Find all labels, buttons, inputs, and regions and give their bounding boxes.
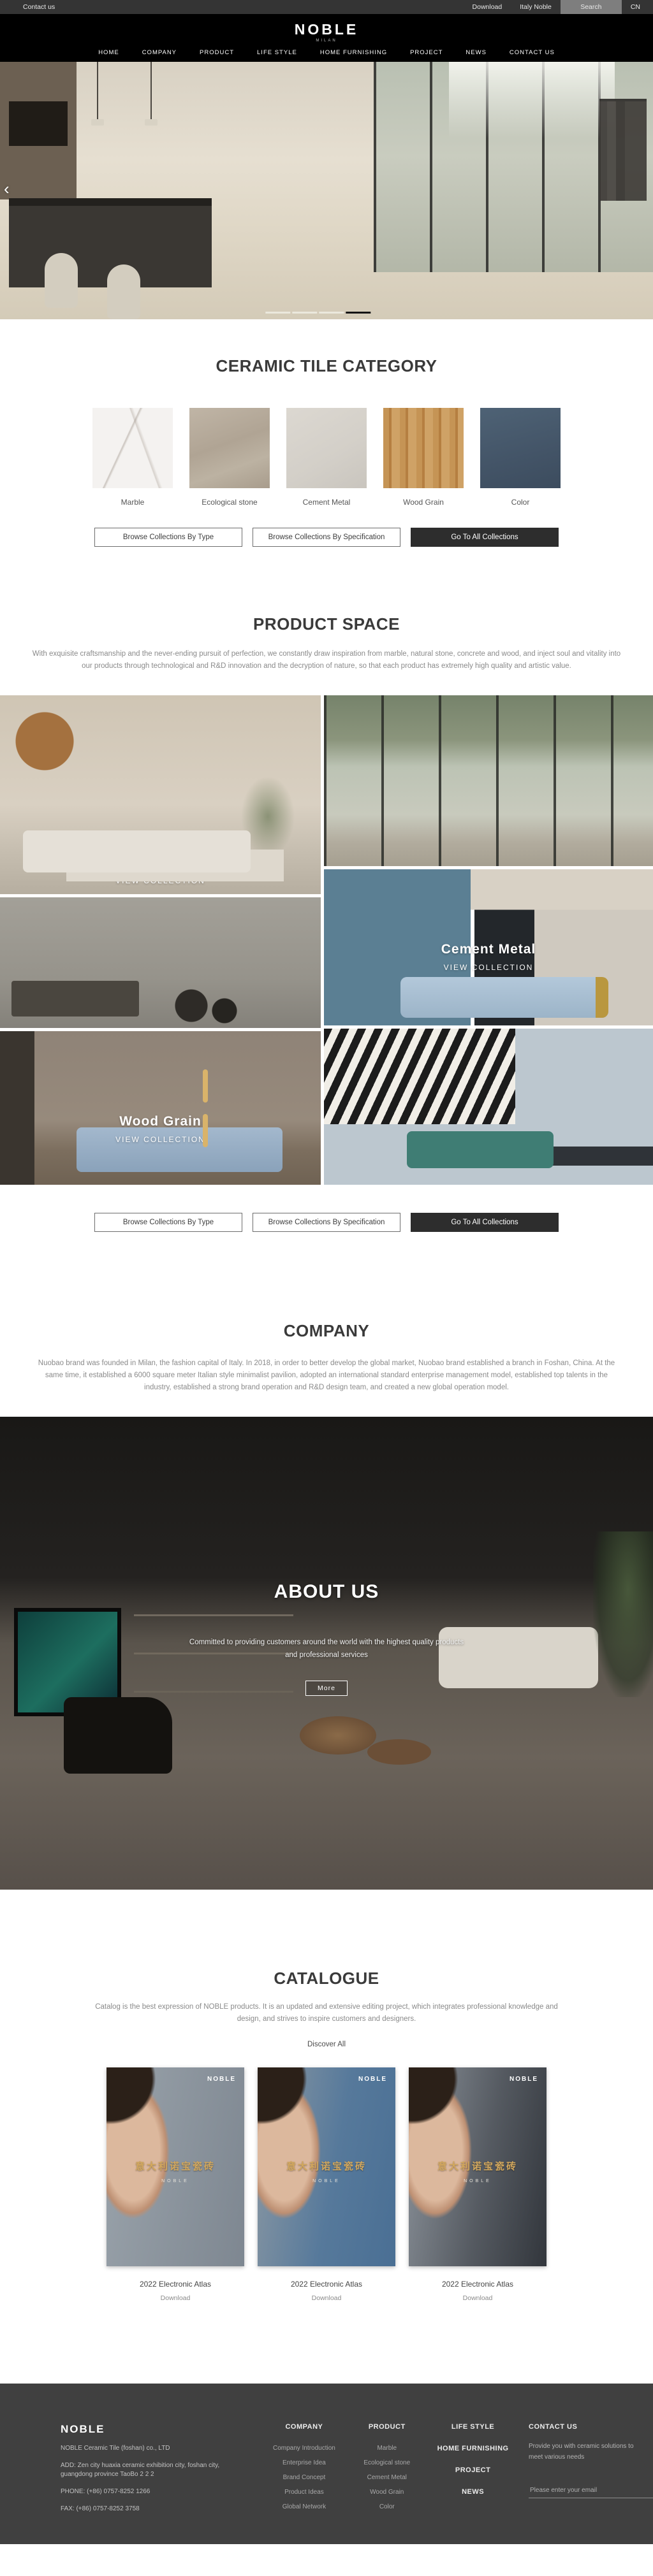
carousel-prev-icon[interactable]: ‹ xyxy=(4,180,10,197)
poster-subtitle: NOBLE xyxy=(409,2179,547,2183)
hero-window-glow xyxy=(449,62,615,138)
topbar-right: Download Italy Noble Search CN xyxy=(464,0,653,14)
catalogue-card-1: NOBLE 意大利诺宝瓷砖 NOBLE 2022 Electronic Atla… xyxy=(106,2067,244,2302)
footer-column-nav: LIFE STYLE HOME FURNISHING PROJECT NEWS xyxy=(436,2423,510,2544)
poster-brand: NOBLE xyxy=(207,2076,236,2083)
category-tile-color[interactable]: Color xyxy=(480,408,561,507)
footer-contact-text: Provide you with ceramic solutions to me… xyxy=(529,2441,637,2463)
cement-metal-swatch-image xyxy=(286,408,367,488)
go-to-all-collections-button[interactable]: Go To All Collections xyxy=(411,1213,559,1232)
catalogue-cover-3[interactable]: NOBLE 意大利诺宝瓷砖 NOBLE xyxy=(409,2067,547,2266)
space-tile-cement-metal[interactable]: Cement Metal VIEW COLLECTION xyxy=(324,869,653,1025)
about-more-button[interactable]: More xyxy=(305,1681,348,1696)
footer-link-life-style[interactable]: LIFE STYLE xyxy=(436,2423,510,2431)
footer-contact-title[interactable]: CONTACT US xyxy=(529,2423,653,2431)
about-title: ABOUT US xyxy=(0,1581,653,1603)
main-nav: HOME COMPANY PRODUCT LIFE STYLE HOME FUR… xyxy=(0,43,653,62)
carousel-indicator-3[interactable] xyxy=(319,312,344,314)
catalogue-card-3: NOBLE 意大利诺宝瓷砖 NOBLE 2022 Electronic Atla… xyxy=(409,2067,547,2302)
footer-link-product-ideas[interactable]: Product Ideas xyxy=(271,2485,338,2500)
space-tile-caption: Wood Grain VIEW COLLECTION xyxy=(0,1114,321,1144)
nav-item-news[interactable]: NEWS xyxy=(466,49,487,56)
space-tile-glass-pavilion[interactable] xyxy=(324,695,653,866)
carousel-indicators xyxy=(265,312,371,314)
color-swatch-image xyxy=(480,408,561,488)
catalogue-paragraph: Catalog is the best expression of NOBLE … xyxy=(84,2001,569,2025)
footer-link-home-furnishing[interactable]: HOME FURNISHING xyxy=(436,2445,510,2452)
download-link[interactable]: Download xyxy=(464,0,511,14)
category-tile-label: Color xyxy=(480,498,561,507)
footer-link-wood-grain[interactable]: Wood Grain xyxy=(356,2485,417,2500)
company-paragraph: Nuobao brand was founded in Milan, the f… xyxy=(38,1357,615,1394)
footer-link-ecological-stone[interactable]: Ecological stone xyxy=(356,2456,417,2470)
footer-link-color[interactable]: Color xyxy=(356,2500,417,2514)
hero-bar-stool xyxy=(107,264,140,319)
footer-phone: PHONE: (+86) 0757-8252 1266 xyxy=(61,2487,252,2496)
ceramic-tile-category-section: CERAMIC TILE CATEGORY Marble Ecological … xyxy=(0,319,653,547)
newsletter-email-input[interactable] xyxy=(529,2484,653,2498)
footer-link-cement-metal[interactable]: Cement Metal xyxy=(356,2470,417,2485)
footer-link-project[interactable]: PROJECT xyxy=(436,2466,510,2474)
catalogue-section: CATALOGUE Catalog is the best expression… xyxy=(0,1969,653,2302)
footer-link-marble[interactable]: Marble xyxy=(356,2441,417,2456)
footer-column-product: PRODUCT Marble Ecological stone Cement M… xyxy=(356,2423,417,2544)
poster-title-cn: 意大利诺宝瓷砖 xyxy=(409,2159,547,2173)
footer-brand-logo: NOBLE xyxy=(61,2423,252,2436)
catalogue-download-link[interactable]: Download xyxy=(258,2294,395,2302)
nav-item-product[interactable]: PRODUCT xyxy=(200,49,234,56)
footer-link-global-network[interactable]: Global Network xyxy=(271,2500,338,2514)
site-header: NOBLE MILAN xyxy=(0,14,653,43)
space-tile-title: Wood Grain xyxy=(0,1114,321,1129)
space-tile-caption: Cement Metal VIEW COLLECTION xyxy=(324,942,653,972)
space-tile-wood-grain[interactable]: Wood Grain VIEW COLLECTION xyxy=(0,1031,321,1185)
category-tile-cement-metal[interactable]: Cement Metal xyxy=(286,408,367,507)
browse-by-specification-button[interactable]: Browse Collections By Specification xyxy=(253,1213,400,1232)
top-utility-bar: Contact us Download Italy Noble Search C… xyxy=(0,0,653,14)
footer-company-name: NOBLE Ceramic Tile (foshan) co., LTD xyxy=(61,2444,252,2453)
footer-product-links: Marble Ecological stone Cement Metal Woo… xyxy=(356,2441,417,2514)
carousel-indicator-4-active[interactable] xyxy=(346,312,371,314)
category-tile-label: Cement Metal xyxy=(286,498,367,507)
company-title: COMPANY xyxy=(0,1321,653,1341)
language-toggle-cn[interactable]: CN xyxy=(622,0,653,14)
marble-swatch-image xyxy=(92,408,173,488)
nav-item-home[interactable]: HOME xyxy=(98,49,119,56)
footer-link-news[interactable]: NEWS xyxy=(436,2488,510,2496)
browse-by-type-button[interactable]: Browse Collections By Type xyxy=(94,528,242,547)
nav-item-life-style[interactable]: LIFE STYLE xyxy=(257,49,297,56)
footer-company-info: NOBLE NOBLE Ceramic Tile (foshan) co., L… xyxy=(61,2423,252,2544)
poster-title-cn: 意大利诺宝瓷砖 xyxy=(258,2159,395,2173)
about-us-banner: ABOUT US Committed to providing customer… xyxy=(0,1417,653,1890)
carousel-indicator-2[interactable] xyxy=(292,312,317,314)
category-section-title: CERAMIC TILE CATEGORY xyxy=(0,356,653,376)
category-tile-label: Marble xyxy=(92,498,173,507)
space-tile-caption: Marbl VIEW COLLECTION xyxy=(0,855,321,885)
category-tile-marble[interactable]: Marble xyxy=(92,408,173,507)
footer-contact-block: CONTACT US Provide you with ceramic solu… xyxy=(529,2423,653,2544)
view-collection-link[interactable]: VIEW COLLECTION xyxy=(324,963,653,972)
footer-column-title[interactable]: COMPANY xyxy=(271,2423,338,2431)
catalogue-cover-1[interactable]: NOBLE 意大利诺宝瓷砖 NOBLE xyxy=(106,2067,244,2266)
catalogue-download-link[interactable]: Download xyxy=(409,2294,547,2302)
view-collection-link[interactable]: VIEW COLLECTION xyxy=(0,876,321,885)
space-tile-marble[interactable]: Marbl VIEW COLLECTION xyxy=(0,695,321,894)
about-overlay: ABOUT US Committed to providing customer… xyxy=(0,1581,653,1696)
site-footer: NOBLE NOBLE Ceramic Tile (foshan) co., L… xyxy=(0,2384,653,2544)
product-space-paragraph: With exquisite craftsmanship and the nev… xyxy=(29,648,625,672)
catalogue-download-link[interactable]: Download xyxy=(106,2294,244,2302)
category-tile-ecological-stone[interactable]: Ecological stone xyxy=(189,408,270,507)
space-tile-striped-room[interactable] xyxy=(324,1029,653,1185)
showroom-armchair xyxy=(64,1697,172,1774)
grid-right-column: Cement Metal VIEW COLLECTION xyxy=(324,695,653,1185)
ecological-stone-swatch-image xyxy=(189,408,270,488)
catalogue-label: 2022 Electronic Atlas xyxy=(258,2280,395,2289)
go-to-all-collections-button[interactable]: Go To All Collections xyxy=(411,528,559,547)
company-section: COMPANY Nuobao brand was founded in Mila… xyxy=(0,1321,653,1394)
hero-fireplace xyxy=(9,101,68,146)
search-button[interactable]: Search xyxy=(561,0,622,14)
nav-item-home-furnishing[interactable]: HOME FURNISHING xyxy=(320,49,387,56)
poster-title-cn: 意大利诺宝瓷砖 xyxy=(106,2159,244,2173)
hero-pendant-light xyxy=(97,62,98,120)
footer-company-links: Company Introduction Enterprise Idea Bra… xyxy=(271,2441,338,2514)
showroom-coffee-tables xyxy=(300,1716,376,1755)
nav-item-company[interactable]: COMPANY xyxy=(142,49,177,56)
footer-column-title[interactable]: PRODUCT xyxy=(356,2423,417,2431)
space-tile-title: Cement Metal xyxy=(324,942,653,957)
nav-item-project[interactable]: PROJECT xyxy=(410,49,443,56)
catalogue-label: 2022 Electronic Atlas xyxy=(106,2280,244,2289)
about-line2: and professional services xyxy=(285,1651,368,1659)
catalogue-card-2: NOBLE 意大利诺宝瓷砖 NOBLE 2022 Electronic Atla… xyxy=(258,2067,395,2302)
category-tile-label: Wood Grain xyxy=(383,498,464,507)
footer-address: ADD: Zen city huaxia ceramic exhibition … xyxy=(61,2461,252,2479)
about-line1: Committed to providing customers around … xyxy=(189,1639,464,1646)
category-browse-buttons: Browse Collections By Type Browse Collec… xyxy=(0,528,653,547)
product-space-grid: Marbl VIEW COLLECTION Wood Grain VIEW CO… xyxy=(0,695,653,1185)
catalogue-title: CATALOGUE xyxy=(0,1969,653,1988)
footer-link-brand-concept[interactable]: Brand Concept xyxy=(271,2470,338,2485)
discover-all-link[interactable]: Discover All xyxy=(0,2041,653,2048)
product-space-browse-buttons: Browse Collections By Type Browse Collec… xyxy=(0,1213,653,1232)
about-text: Committed to providing customers around … xyxy=(0,1636,653,1661)
poster-subtitle: NOBLE xyxy=(106,2179,244,2183)
product-space-section: PRODUCT SPACE With exquisite craftsmansh… xyxy=(0,614,653,1232)
browse-by-specification-button[interactable]: Browse Collections By Specification xyxy=(253,528,400,547)
hero-carousel: ‹ xyxy=(0,62,653,319)
italy-noble-link[interactable]: Italy Noble xyxy=(511,0,561,14)
poster-subtitle: NOBLE xyxy=(258,2179,395,2183)
poster-brand: NOBLE xyxy=(358,2076,387,2083)
category-tile-wood-grain[interactable]: Wood Grain xyxy=(383,408,464,507)
footer-link-enterprise-idea[interactable]: Enterprise Idea xyxy=(271,2456,338,2470)
catalogue-posters: NOBLE 意大利诺宝瓷砖 NOBLE 2022 Electronic Atla… xyxy=(0,2067,653,2302)
poster-brand: NOBLE xyxy=(510,2076,538,2083)
category-tile-label: Ecological stone xyxy=(189,498,270,507)
brand-logo[interactable]: NOBLE xyxy=(0,22,653,37)
hero-bar-stool xyxy=(45,253,78,308)
browse-by-type-button[interactable]: Browse Collections By Type xyxy=(94,1213,242,1232)
product-space-title: PRODUCT SPACE xyxy=(0,614,653,634)
nav-item-contact-us[interactable]: CONTACT US xyxy=(510,49,555,56)
space-tile-title: Marbl xyxy=(0,855,321,871)
grid-left-column: Marbl VIEW COLLECTION Wood Grain VIEW CO… xyxy=(0,695,321,1185)
footer-fax: FAX: (+86) 0757-8252 3758 xyxy=(61,2505,252,2514)
footer-column-company: COMPANY Company Introduction Enterprise … xyxy=(271,2423,338,2544)
hero-clothes-rack xyxy=(599,99,647,201)
space-tile-living-room[interactable] xyxy=(0,897,321,1028)
catalogue-label: 2022 Electronic Atlas xyxy=(409,2280,547,2289)
view-collection-link[interactable]: VIEW COLLECTION xyxy=(0,1135,321,1144)
hero-pendant-light xyxy=(150,62,152,120)
footer-link-company-introduction[interactable]: Company Introduction xyxy=(271,2441,338,2456)
contact-us-link[interactable]: Contact us xyxy=(0,3,55,11)
catalogue-cover-2[interactable]: NOBLE 意大利诺宝瓷砖 NOBLE xyxy=(258,2067,395,2266)
category-tiles: Marble Ecological stone Cement Metal Woo… xyxy=(0,408,653,507)
carousel-indicator-1[interactable] xyxy=(265,312,290,314)
wood-grain-swatch-image xyxy=(383,408,464,488)
